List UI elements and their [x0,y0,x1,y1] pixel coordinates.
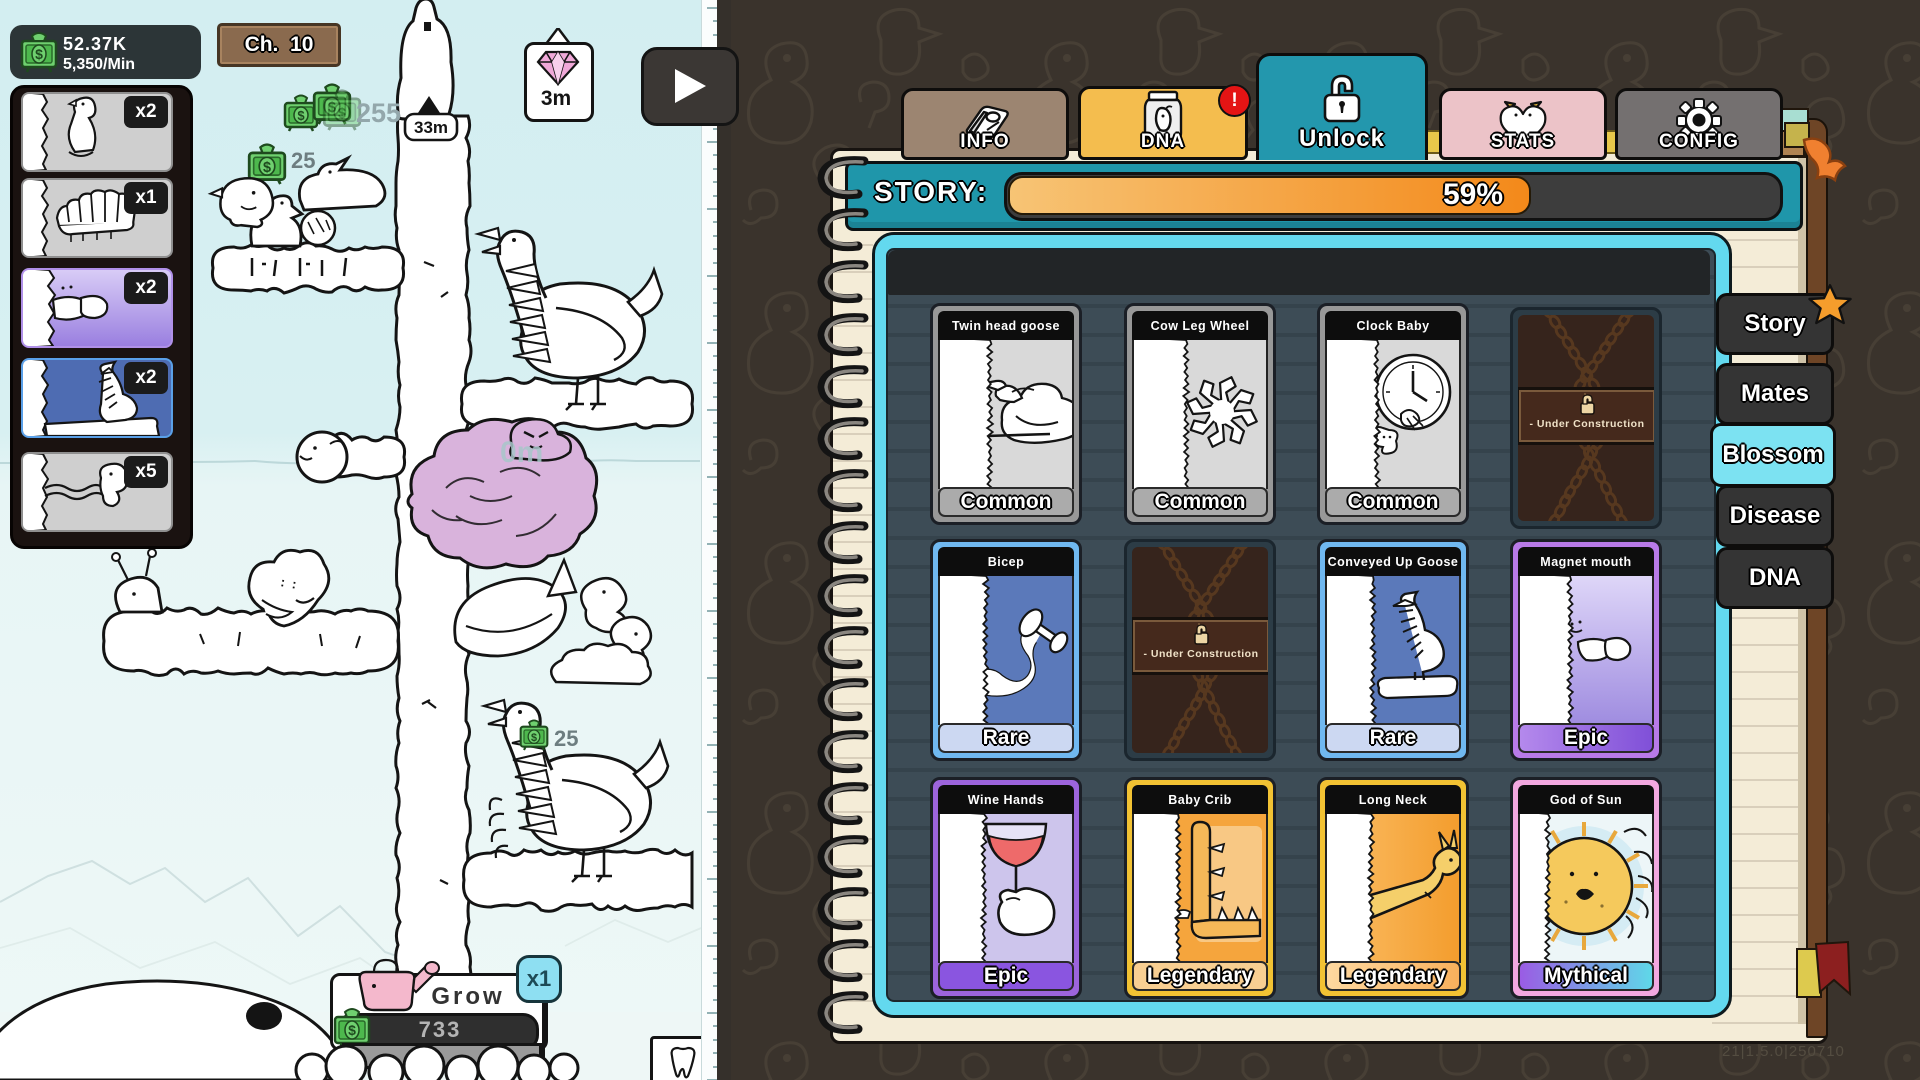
svg-text:25: 25 [291,148,315,173]
svg-text:25: 25 [554,726,578,751]
svg-text:255: 255 [356,98,401,128]
svg-text:0m: 0m [500,436,543,469]
svg-text:$: $ [338,106,346,122]
svg-text:$: $ [348,1022,356,1038]
svg-text:: :: : : [279,574,297,592]
svg-text:33m: 33m [414,118,448,137]
svg-text:$: $ [297,108,305,123]
svg-text:$: $ [531,732,537,744]
svg-text:$: $ [263,160,271,176]
svg-text:$: $ [35,46,43,62]
